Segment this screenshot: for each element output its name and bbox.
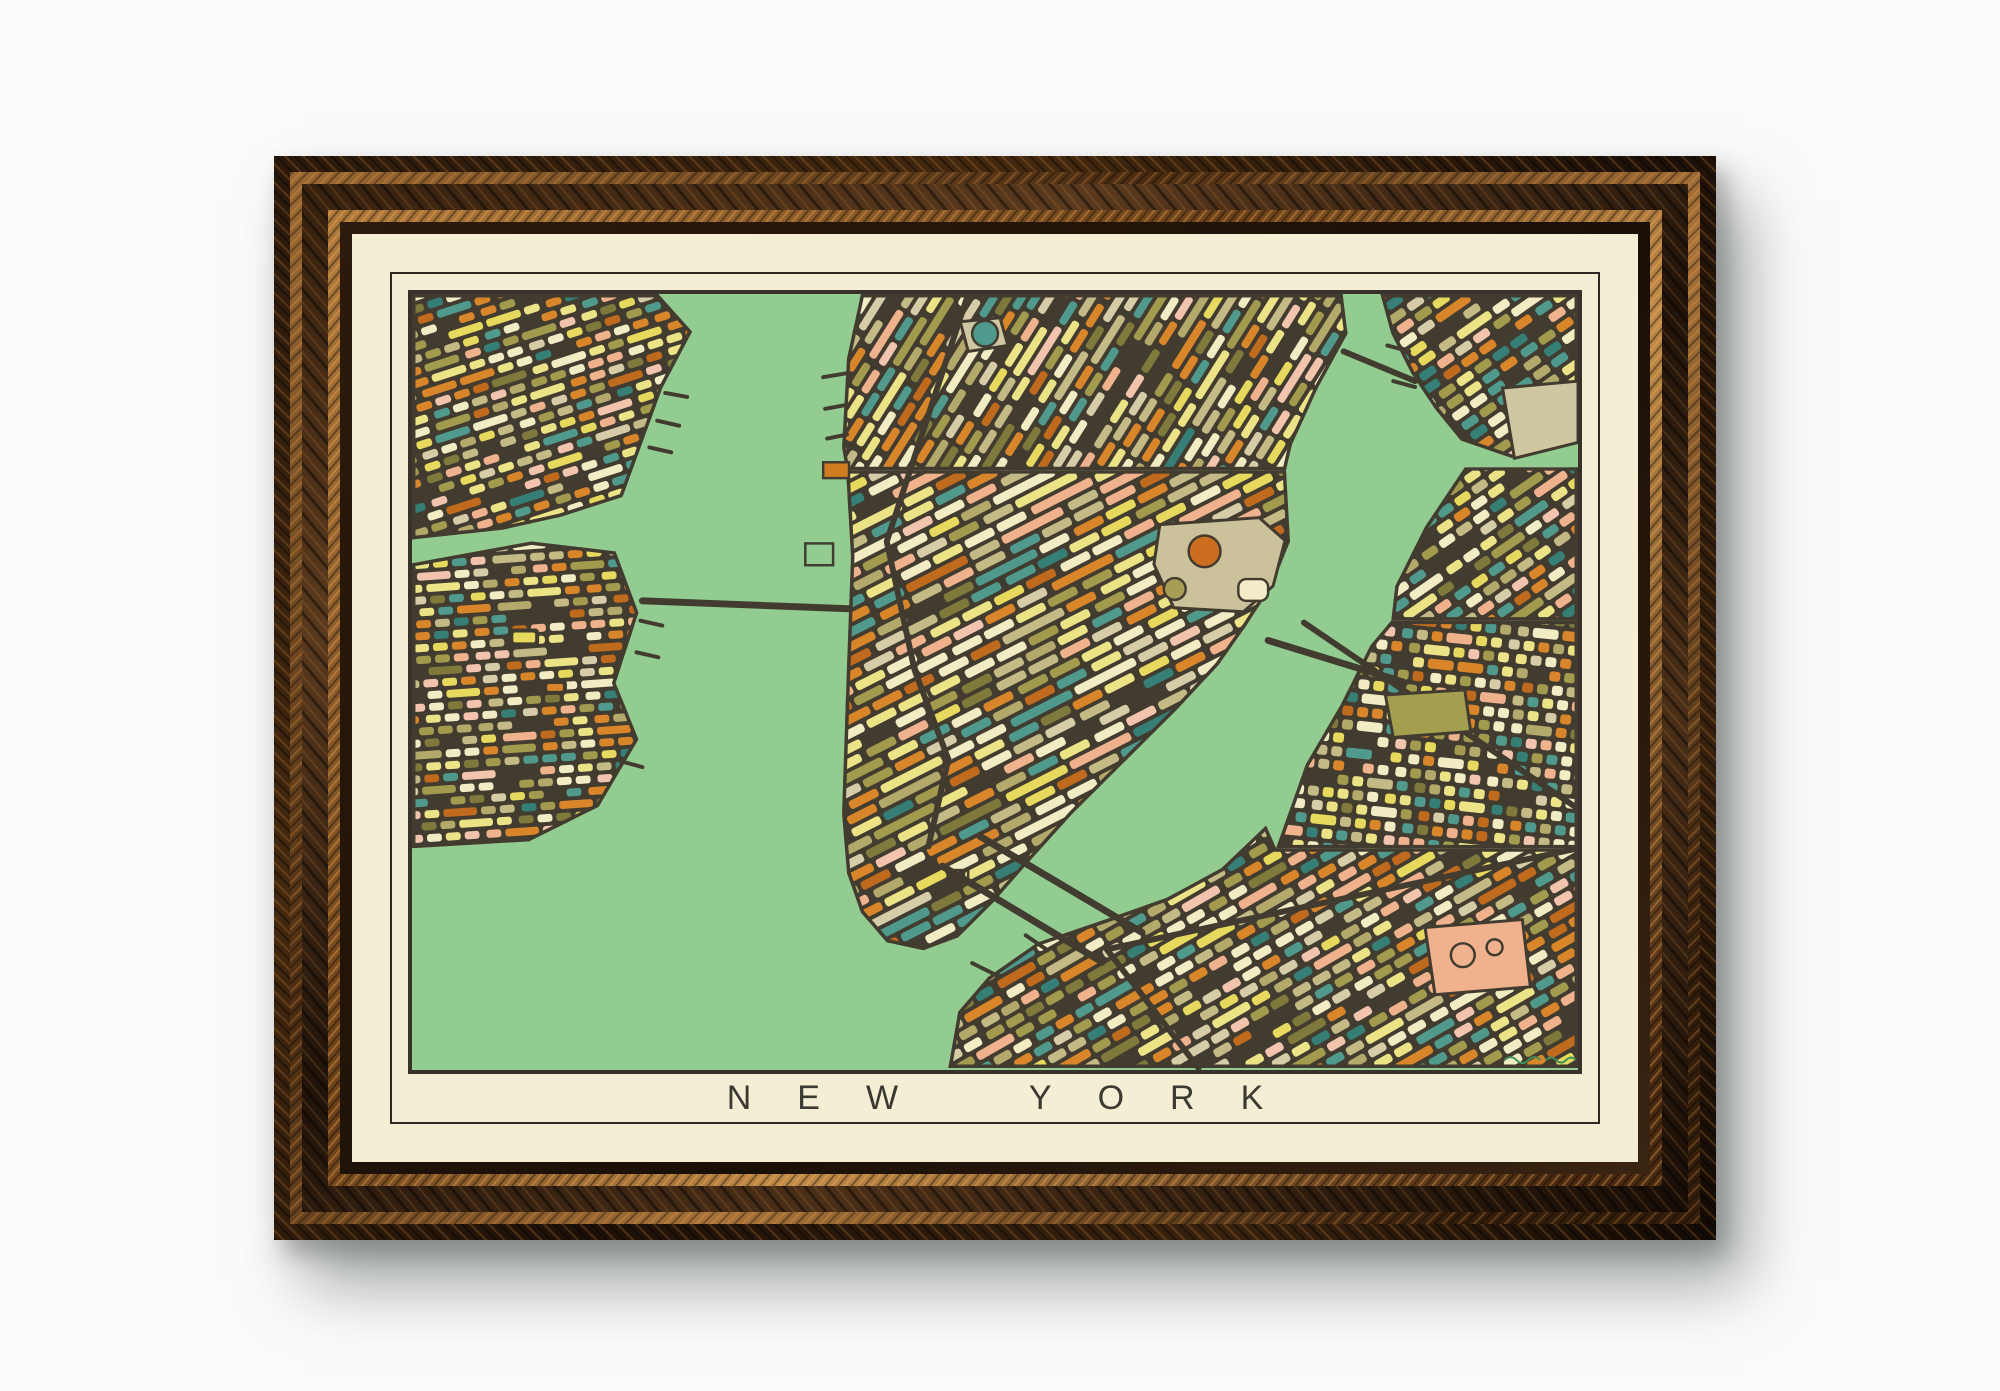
park-olive-park: [1385, 690, 1470, 738]
city-map-svg: [412, 294, 1578, 1070]
map-artwork: [408, 290, 1582, 1074]
frame-groove-molding: NEW YORK: [302, 184, 1688, 1212]
park-fort-greene: [1425, 920, 1530, 995]
frame-inner-lip: NEW YORK: [328, 210, 1662, 1186]
park-midtown-square: [960, 318, 1008, 352]
frame-ridge-molding: NEW YORK: [290, 172, 1700, 1224]
small-island: [509, 629, 539, 647]
picture-frame: NEW YORK: [274, 156, 1716, 1240]
waterfront-structure: [823, 462, 849, 478]
mat-board: NEW YORK: [352, 234, 1638, 1162]
small-island: [543, 680, 567, 695]
title-band: NEW YORK: [408, 1074, 1582, 1122]
frame-inner-step: NEW YORK: [340, 222, 1650, 1174]
art-print: NEW YORK: [390, 272, 1600, 1124]
print-title: NEW YORK: [681, 1079, 1310, 1118]
park-shipyard: [1503, 381, 1578, 458]
park-stuyvesant-blob: [1154, 518, 1285, 612]
product-photo: NEW YORK: [0, 0, 2000, 1391]
